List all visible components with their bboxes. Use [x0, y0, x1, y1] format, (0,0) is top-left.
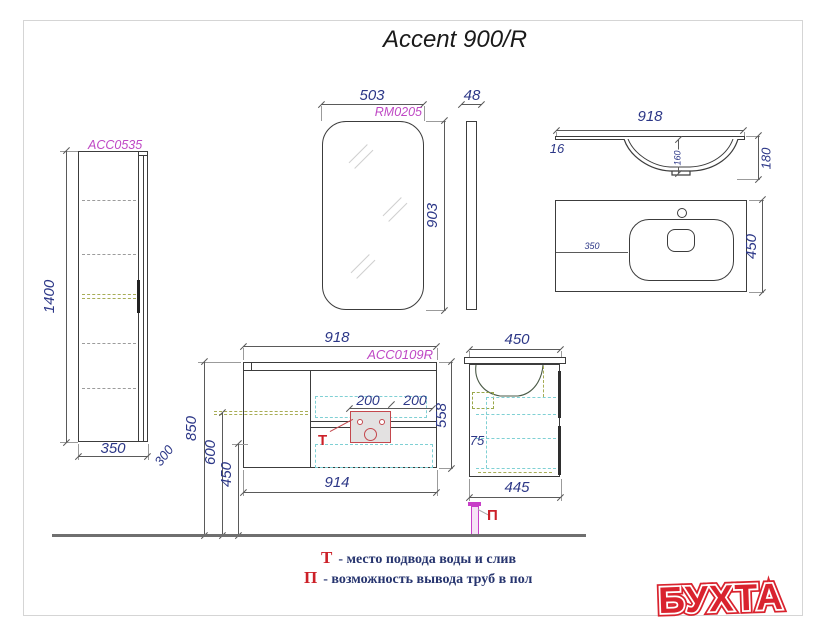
side-countertop	[464, 357, 566, 364]
mirror-side-outline	[466, 121, 477, 310]
ext-line	[243, 348, 244, 360]
dim-text: 180	[758, 147, 773, 169]
drain-dashed-line	[214, 414, 308, 415]
legend-row-t: Т - место подвода воды и слив	[321, 548, 516, 568]
dim-line	[556, 252, 628, 253]
hidden-line-dashed	[486, 397, 556, 398]
dim-basin-height: 180	[753, 134, 779, 182]
dim-text: 450	[219, 461, 236, 486]
dim-line	[243, 492, 437, 493]
dim-line	[461, 104, 482, 105]
shelf-dashed-line	[82, 200, 136, 201]
dim-clearance: 450	[213, 446, 241, 502]
plumbing-hole	[379, 419, 385, 425]
dim-vanity-bottom-width: 914	[307, 474, 367, 491]
dim-mirror-thickness: 48	[442, 87, 502, 104]
logo-text: БУХТА	[658, 576, 785, 622]
dim-basin-edge: 16	[547, 141, 567, 156]
plumbing-drain-hole	[364, 428, 377, 441]
dim-text: 300	[151, 442, 176, 468]
tall-cabinet-label: ACC0535	[88, 138, 142, 152]
dim-line	[556, 130, 744, 131]
line	[310, 370, 311, 468]
line	[138, 155, 147, 156]
dim-mirror-height: 903	[419, 187, 447, 243]
cabinet-door-handle	[137, 280, 140, 313]
buhta-logo: БУХТА БУХТА БУХТА	[641, 563, 801, 634]
dim-cabinet-height: 1400	[36, 268, 64, 324]
legend-p-symbol: П	[304, 568, 317, 588]
dim-line	[66, 151, 67, 442]
dim-side-bottom-depth: 445	[487, 479, 547, 496]
plumbing-hole	[357, 419, 363, 425]
drawer-dashed-box	[315, 444, 433, 468]
dim-vanity-height: 558	[428, 387, 456, 443]
shelf-dashed-line	[82, 254, 136, 255]
t-marker: Т	[318, 432, 327, 449]
line	[143, 155, 144, 441]
shelf-dashed-line	[82, 343, 136, 344]
dim-basin-depth: 450	[738, 220, 766, 272]
dim-text: 1400	[42, 279, 59, 312]
basin-drain	[667, 229, 695, 252]
ext-line	[424, 106, 425, 121]
ext-line	[60, 442, 78, 443]
dim-line	[469, 349, 561, 350]
legend-p-text: - возможность вывода труб в пол	[323, 572, 532, 588]
technical-drawing-sheet: Accent 900/R ACC0535 1400 350 300 503 RM…	[0, 0, 826, 640]
dim-text: 903	[425, 202, 442, 227]
p-marker: П	[487, 507, 498, 524]
ext-line	[321, 106, 322, 121]
dim-bowl-depth: 160	[670, 143, 686, 173]
ext-line	[232, 444, 248, 445]
shelf-dashed-line-green	[82, 298, 136, 299]
dim-text: 450	[744, 233, 761, 258]
legend-t-text: - место подвода воды и слив	[338, 552, 516, 568]
shelf-dashed-line-green	[82, 294, 136, 295]
hidden-line-dashed	[476, 468, 556, 469]
dim-text: 160	[673, 149, 683, 166]
dim-line	[469, 497, 561, 498]
faucet-hole	[677, 208, 687, 218]
vanity-label: ACC0109R	[355, 347, 433, 362]
drain-dashed-line	[214, 411, 308, 412]
legend-row-p: П - возможность вывода труб в пол	[304, 568, 532, 588]
line	[244, 370, 437, 371]
hidden-line-dashed	[476, 438, 556, 439]
dim-mirror-width: 503	[342, 87, 402, 104]
legend-t-symbol: Т	[321, 548, 332, 568]
page-title: Accent 900/R	[345, 26, 565, 54]
dim-cabinet-depth: 300	[146, 438, 182, 472]
hidden-line-dashed	[478, 472, 552, 473]
dim-line	[349, 408, 433, 409]
floor-line	[52, 534, 586, 537]
dim-side-gap: 75	[466, 433, 488, 448]
side-drawer-front	[558, 426, 561, 475]
dim-basin-offset: 350	[577, 241, 607, 251]
ext-line	[437, 348, 438, 360]
shelf-dashed-line	[82, 388, 136, 389]
hidden-line-dashed	[476, 414, 556, 415]
mirror-label: RM0205	[352, 105, 422, 119]
dim-zone-left: 200	[350, 392, 386, 408]
line	[251, 362, 252, 370]
dim-side-depth: 450	[487, 331, 547, 348]
dim-cabinet-width: 350	[83, 440, 143, 457]
dim-basin-width: 918	[620, 108, 680, 125]
siphon-dashed-box	[472, 392, 494, 409]
dim-text: 558	[434, 402, 451, 427]
dim-vanity-width: 918	[307, 329, 367, 346]
hidden-edge-dashed	[543, 366, 544, 397]
